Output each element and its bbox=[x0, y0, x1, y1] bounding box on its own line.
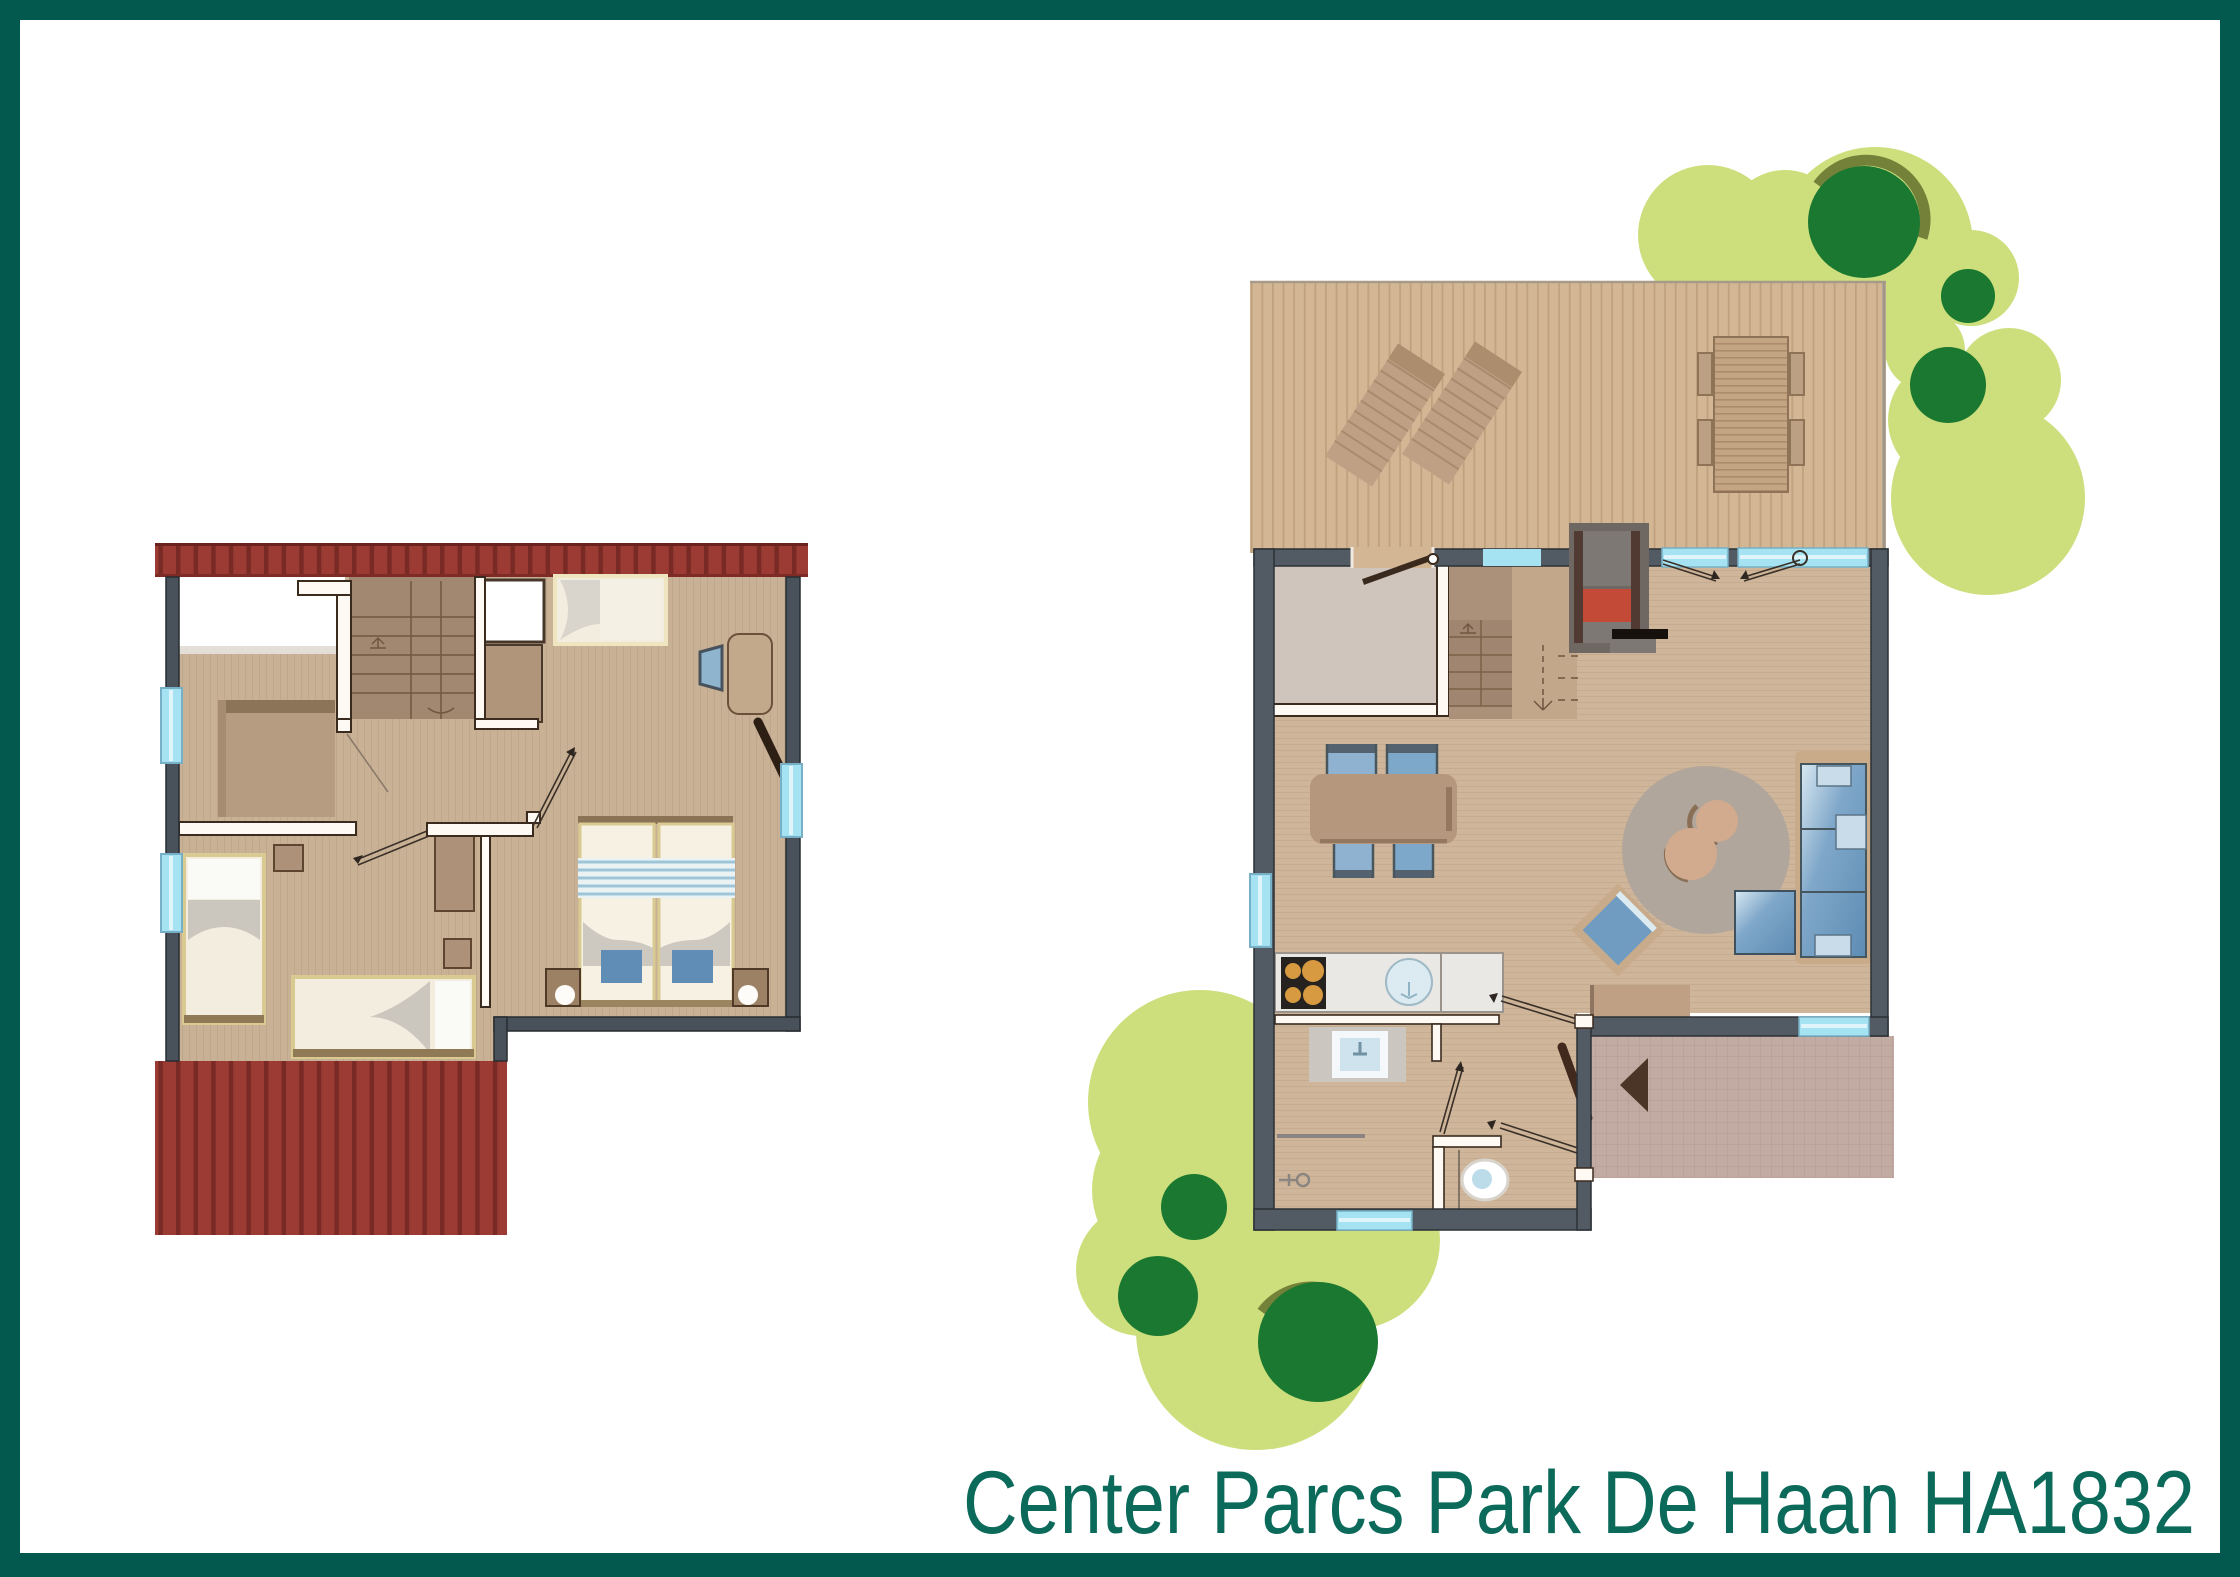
svg-text:Center Parcs Park De Haan HA18: Center Parcs Park De Haan HA1832 bbox=[963, 1452, 2195, 1552]
